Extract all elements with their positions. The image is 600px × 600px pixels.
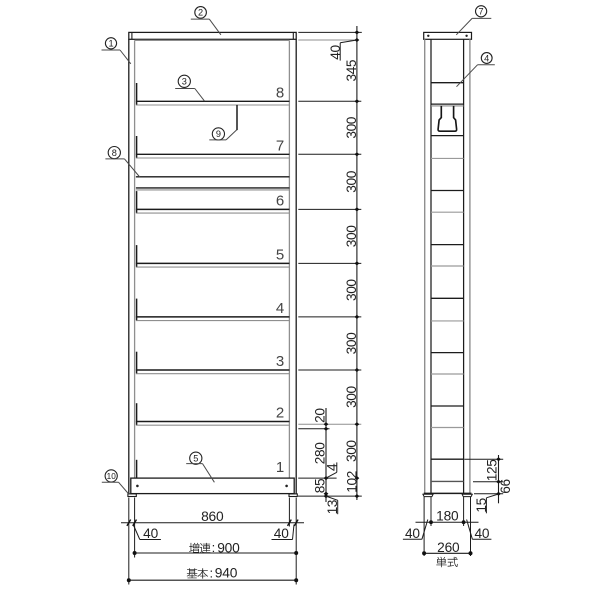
- svg-text:9: 9: [216, 129, 221, 139]
- svg-text:900: 900: [217, 540, 240, 555]
- svg-text:3: 3: [276, 353, 284, 370]
- svg-text:7: 7: [479, 7, 484, 17]
- svg-text:3: 3: [182, 77, 187, 87]
- svg-text:4: 4: [276, 300, 284, 317]
- svg-text:7: 7: [276, 137, 284, 154]
- svg-text:860: 860: [201, 509, 224, 524]
- svg-text:66: 66: [498, 479, 513, 494]
- svg-text:1: 1: [276, 459, 284, 476]
- svg-text:300: 300: [344, 385, 359, 407]
- svg-text:300: 300: [344, 279, 359, 301]
- svg-text:180: 180: [436, 508, 459, 523]
- svg-text::: :: [212, 540, 215, 555]
- svg-text:8: 8: [276, 84, 284, 101]
- svg-text:102: 102: [344, 471, 359, 493]
- svg-text:345: 345: [344, 59, 359, 81]
- svg-text:2: 2: [276, 405, 284, 422]
- svg-text:40: 40: [474, 526, 489, 541]
- svg-text:10: 10: [107, 472, 117, 481]
- svg-text:40: 40: [274, 526, 289, 541]
- svg-text:260: 260: [437, 540, 460, 555]
- svg-text:2: 2: [198, 8, 203, 18]
- svg-text:125: 125: [485, 459, 500, 481]
- svg-text:300: 300: [344, 225, 359, 247]
- svg-text:6: 6: [276, 192, 284, 209]
- svg-text:5: 5: [193, 454, 198, 464]
- svg-text::: :: [209, 565, 212, 580]
- svg-text:40: 40: [143, 526, 158, 541]
- svg-text:4: 4: [484, 53, 489, 63]
- svg-text:300: 300: [344, 116, 359, 138]
- svg-text:280: 280: [313, 442, 328, 464]
- svg-text:940: 940: [215, 566, 238, 581]
- svg-text:85: 85: [313, 478, 328, 493]
- svg-text:300: 300: [344, 170, 359, 192]
- svg-text:5: 5: [276, 246, 284, 263]
- svg-text:20: 20: [313, 408, 328, 423]
- svg-text:8: 8: [112, 148, 117, 158]
- svg-text:300: 300: [344, 440, 359, 462]
- svg-text:40: 40: [405, 526, 420, 541]
- svg-text:300: 300: [344, 332, 359, 354]
- svg-text:1: 1: [108, 39, 113, 49]
